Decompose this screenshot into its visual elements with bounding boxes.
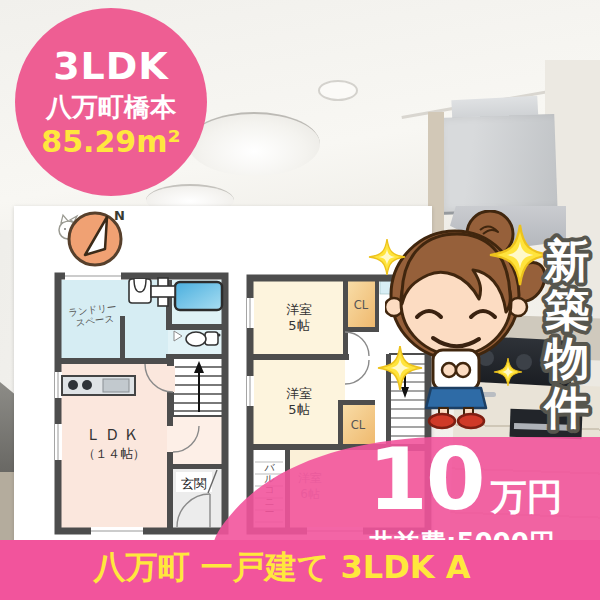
new-construction-banner: 新 築 物 件 [538, 232, 596, 442]
banner-char: 新 [544, 234, 590, 287]
compass-icon: N [48, 206, 132, 270]
ldk-label: ＬＤＫ [86, 425, 143, 444]
banner-char: 物 [544, 332, 590, 385]
badge-layout: 3LDK [53, 43, 169, 91]
badge-location: 八万町橋本 [46, 91, 176, 124]
toilet-icon [186, 332, 221, 346]
badge-area: 85.29m² [41, 123, 180, 161]
stairs-icon [173, 358, 225, 416]
room-label: 洋室 [286, 302, 312, 317]
compass-north-label: N [114, 208, 125, 223]
downlight-photo [318, 80, 358, 101]
ceiling-light-photo [188, 112, 320, 176]
footer-bar: 八万町 一戸建て 3LDK A [0, 540, 600, 600]
room-size-label: 6帖 [300, 487, 320, 501]
floorplan-first-floor: ランドリー スペース ＬＤＫ （１４帖） 玄関 [55, 272, 230, 535]
room-size-label: 5帖 [288, 318, 309, 333]
room-label: 洋室 [298, 471, 322, 485]
property-title: 八万町 一戸建て 3LDK A [94, 546, 471, 590]
room-label: 洋室 [286, 386, 312, 401]
range-hood-photo [434, 114, 557, 215]
mascot-girl-illustration [385, 210, 553, 432]
closet-label: CL [351, 418, 366, 432]
rent-unit: 万円 [491, 479, 563, 515]
balcony-label: バルコニー [258, 456, 280, 536]
ldk-size-label: （１４帖） [83, 446, 146, 461]
bathtub-icon [175, 282, 222, 310]
rent-amount: 10 [368, 436, 484, 522]
room-size-label: 5帖 [288, 402, 309, 417]
closet-label: CL [354, 298, 369, 312]
kitchen-counter-icon [62, 376, 135, 395]
banner-char: 築 [545, 283, 590, 336]
listing-flyer: N [0, 0, 600, 600]
entrance-label: 玄関 [176, 470, 217, 493]
svg-text:玄関: 玄関 [181, 476, 207, 491]
washbasin-icon [129, 279, 151, 303]
banner-char: 件 [543, 381, 590, 434]
property-badge: 3LDK 八万町橋本 85.29m² [15, 8, 207, 196]
